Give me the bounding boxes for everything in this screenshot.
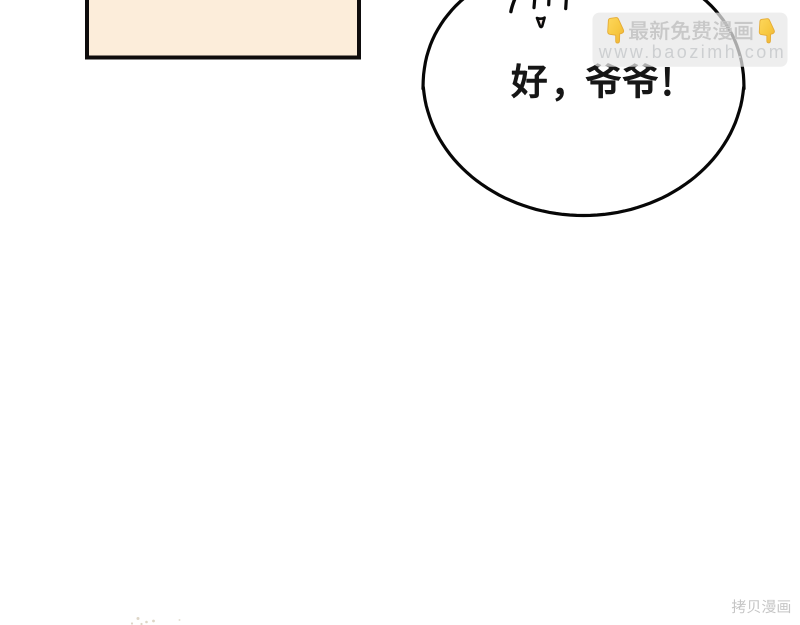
svg-text:www.baozimh.com: www.baozimh.com xyxy=(598,42,784,62)
